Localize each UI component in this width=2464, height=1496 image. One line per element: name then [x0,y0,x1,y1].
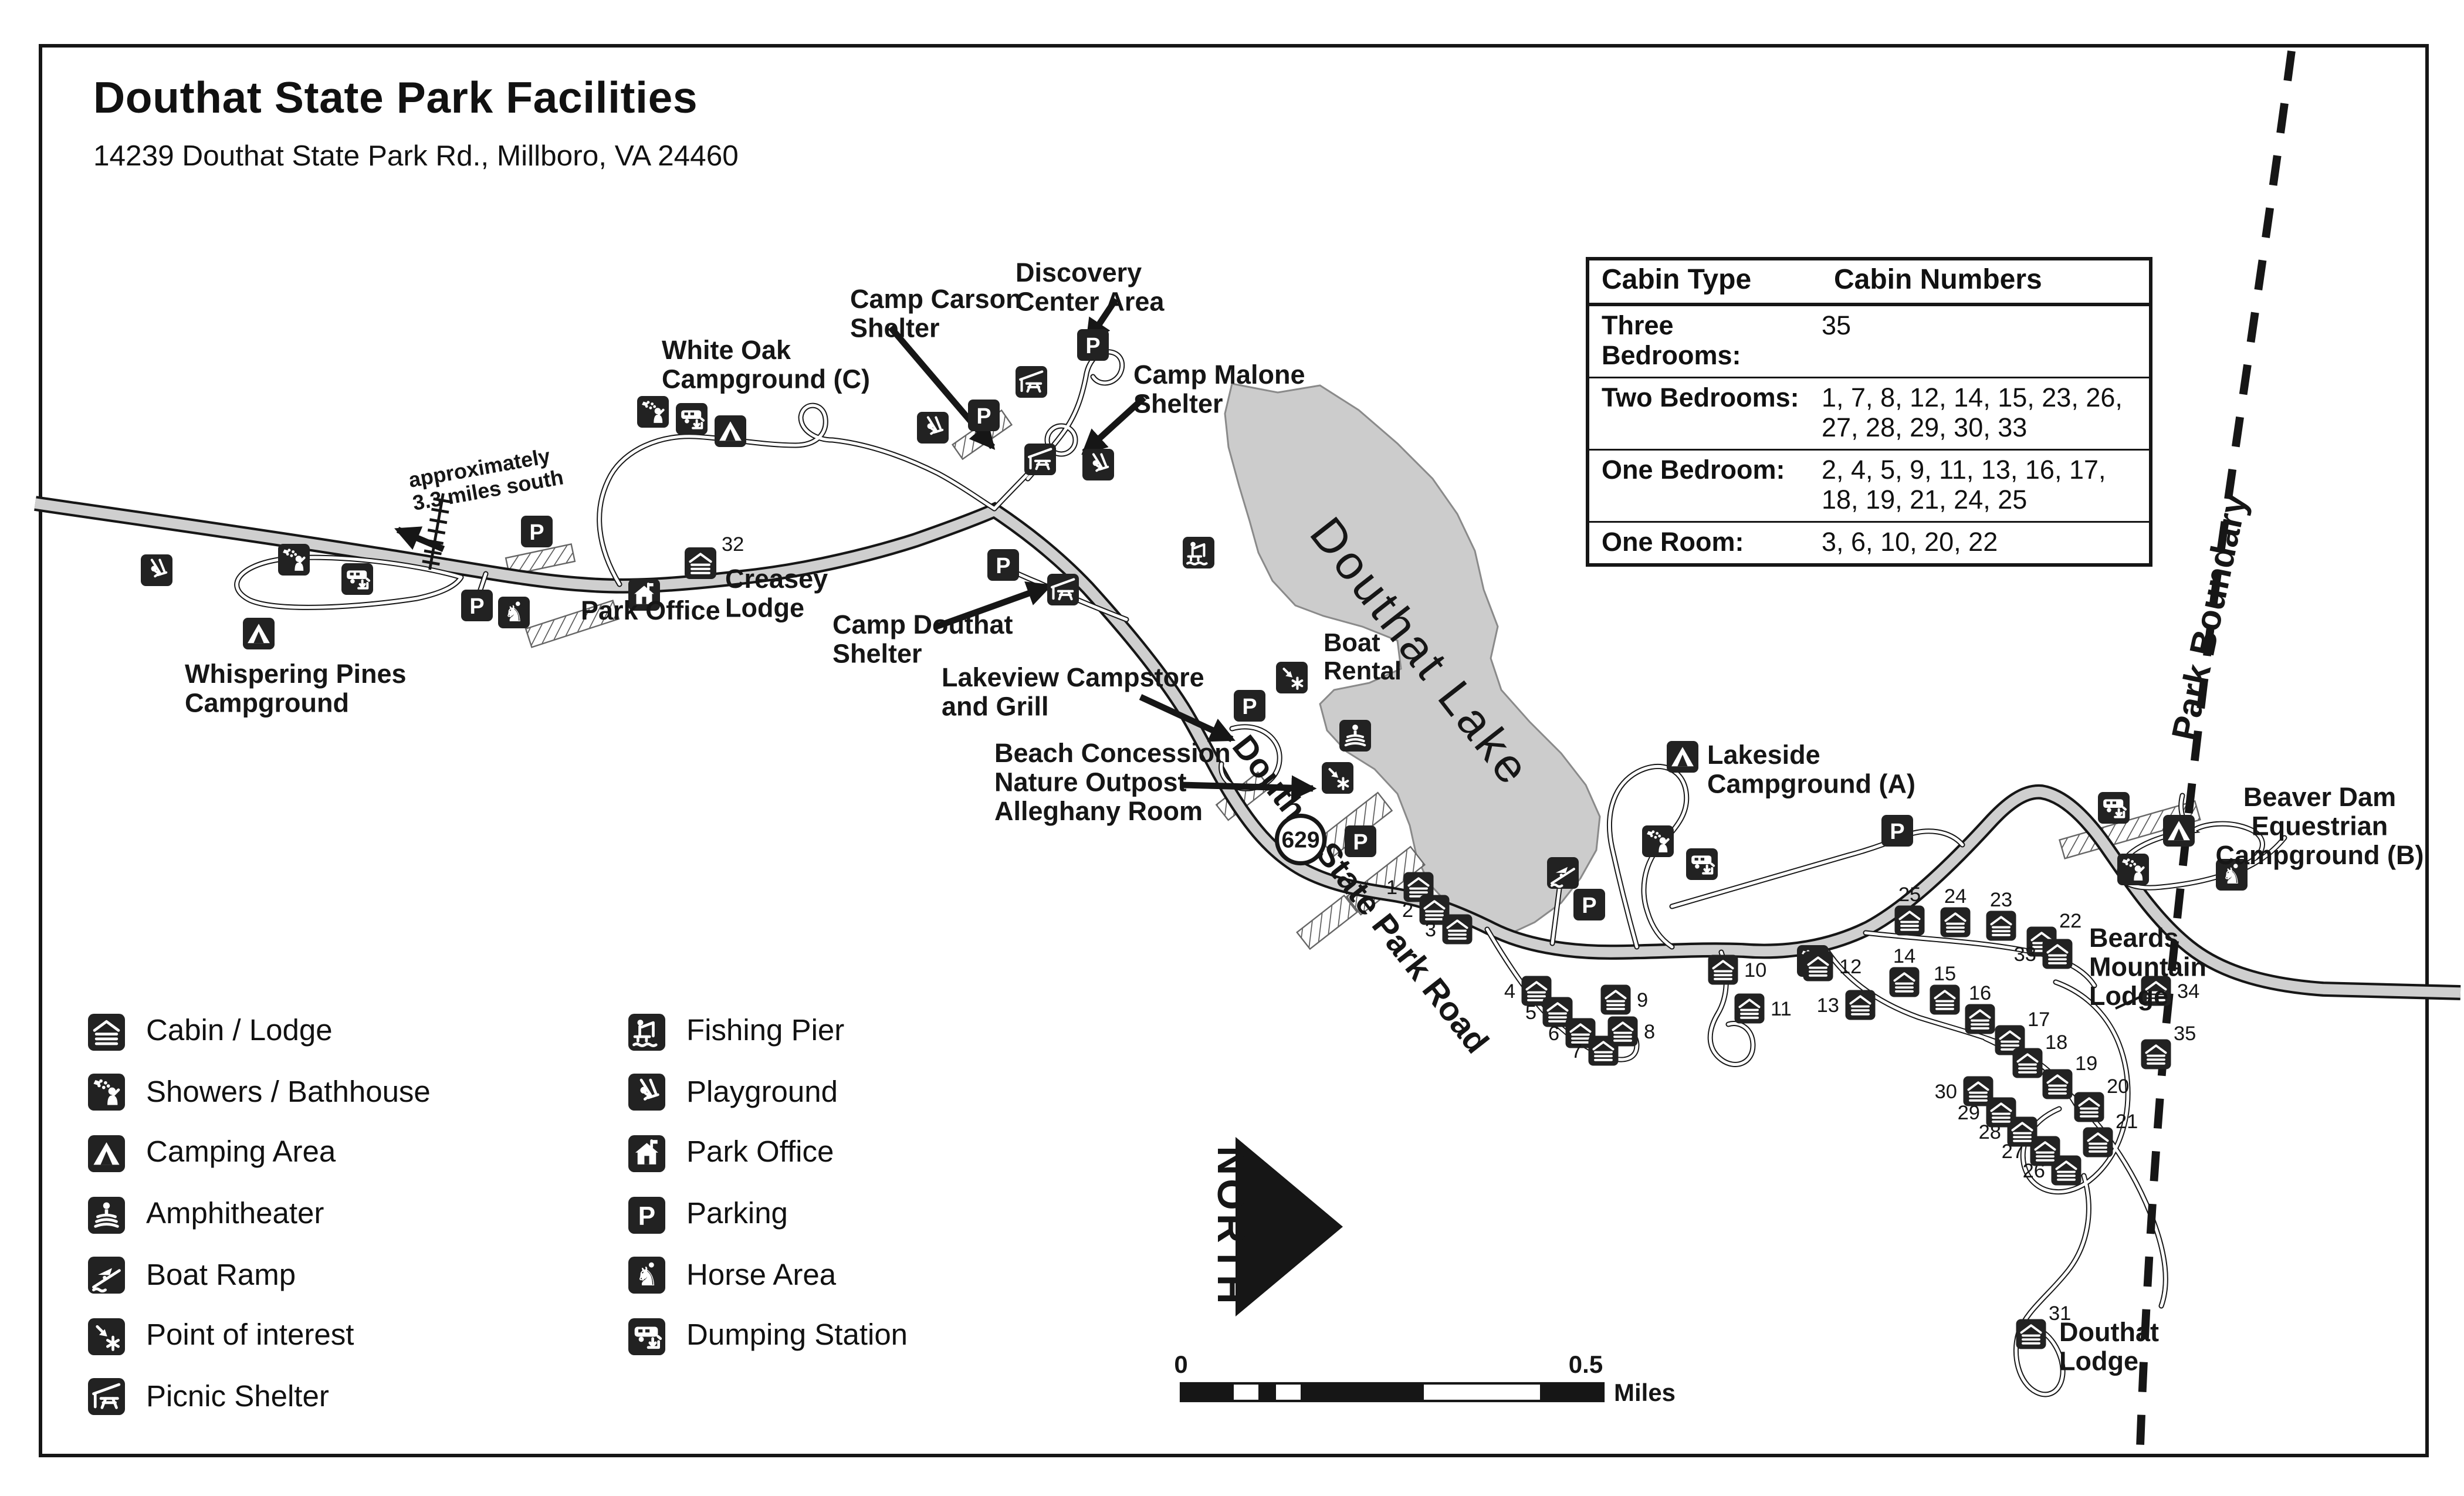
cabin-14-number: 14 [1893,945,1915,967]
legend-column-2: Fishing PierPlaygroundPark OfficePParkin… [628,1001,908,1367]
park-office-icon [628,1135,665,1172]
cabin-18-number: 18 [2045,1031,2067,1054]
legend-label: Parking [686,1197,788,1232]
cabin-10-number: 10 [1744,959,1766,981]
cabin-4-number: 4 [1504,980,1515,1003]
cabin-type: One Room: [1589,523,1822,563]
cabin-18-icon [2013,1048,2043,1078]
map-label-creasey-lodge: CreaseyLodge [725,564,828,623]
svg-text:♞: ♞ [635,1262,659,1292]
marker-cabin-icon [685,547,716,579]
svg-text:P: P [976,404,991,429]
cabin-numbers: 1, 7, 8, 12, 14, 15, 23, 26, 27, 28, 29,… [1822,378,2149,449]
route-629-label: 629 [1281,828,1319,853]
north-arrow: NORTH [1209,1137,1343,1316]
map-label-park-boundary: Park Boundary [2164,490,2255,743]
cabin-1-number: 1 [1386,876,1397,899]
map-label-lakeview-campstore: Lakeview Campstoreand Grill [942,662,1204,722]
map-label-camp-douthat-shelter: Camp DouthatShelter [832,610,1013,669]
cabin-33-icon [2043,939,2073,969]
legend-column-1: Cabin / LodgeShowers / BathhouseCamping … [88,1001,431,1427]
marker-shower-icon [2117,854,2149,885]
marker-camping-icon [1667,741,1698,773]
legend-item-shower: Showers / Bathhouse [88,1062,431,1123]
legend-label: Showers / Bathhouse [146,1075,431,1111]
cabin-15-icon [1930,985,1960,1015]
marker-dumping-icon [676,403,708,435]
cabin-21-number: 21 [2116,1111,2138,1133]
cabin-table-row: One Bedroom:2, 4, 5, 9, 11, 13, 16, 17, … [1589,451,2149,523]
cabin-12-icon [1803,952,1833,981]
cabin-table-header: Cabin Type Cabin Numbers [1589,260,2149,306]
cabin-type-header: Cabin Type [1589,260,1822,303]
marker-parking-icon: P [1077,329,1109,361]
cabin-30-icon [1964,1077,1993,1106]
cabin-20-icon [2074,1092,2104,1122]
map-label-camp-carson-shelter: Camp CarsonShelter [850,284,1022,343]
marker-parking-icon: P [1881,815,1913,847]
cabin-14-icon [1890,967,1920,997]
cabin-8-number: 8 [1644,1021,1655,1043]
cabin-17-number: 17 [2028,1008,2050,1031]
marker-boat-ramp-icon [1547,857,1579,889]
cabin-numbers: 2, 4, 5, 9, 11, 13, 16, 17, 18, 19, 21, … [1822,451,2149,521]
legend-label: Fishing Pier [686,1014,844,1050]
marker-dumping-icon [341,563,373,595]
cabin-23-number: 23 [1990,889,2012,911]
cabin-31-icon [2016,1319,2046,1349]
scale-bar: 00.5Miles [1174,1351,1676,1406]
svg-text:P: P [1085,334,1100,358]
map-label-cabin-32-number: 32 [722,533,744,556]
marker-shower-icon [1642,825,1674,857]
picnic-shelter-icon [88,1379,125,1416]
legend-item-park-office: Park Office [628,1123,908,1184]
cabin-3-icon [1443,915,1473,945]
marker-shower-icon [278,544,310,576]
legend-label: Boat Ramp [146,1258,296,1293]
legend-label: Amphitheater [146,1197,324,1232]
parking-icon: P [628,1196,665,1233]
shower-icon [88,1074,125,1111]
legend-item-dumping: Dumping Station [628,1306,908,1367]
legend-item-camping: Camping Area [88,1123,431,1184]
legend-label: Point of interest [146,1319,354,1354]
marker-shower-icon [637,396,669,428]
park-boundary-line [2140,51,2292,1447]
svg-text:P: P [1890,820,1904,844]
poi-icon [88,1318,125,1355]
cabin-numbers: 35 [1822,306,2149,377]
map-label-approx-miles-note: approximately3.3 miles south [407,442,565,515]
cabin-21-icon [2083,1128,2113,1157]
marker-parking-icon: P [521,516,553,547]
cabin-33-number: 33 [2014,943,2036,966]
marker-picnic-shelter-icon [1016,366,1047,398]
horse-icon: ♞ [628,1257,665,1294]
cabin-9-number: 9 [1637,989,1648,1011]
marker-parking-icon: P [1234,690,1265,722]
cabin-16-icon [1965,1004,1995,1034]
cabin-table-row: Three Bedrooms:35 [1589,306,2149,378]
cabin-20-number: 20 [2107,1075,2129,1098]
marker-amphitheater-icon [1339,720,1371,752]
marker-picnic-shelter-icon [1047,574,1079,605]
svg-text:♞: ♞ [504,601,524,627]
north-label: NORTH [1209,1146,1254,1307]
scale-text: Miles [1614,1379,1676,1406]
marker-dumping-icon [1686,848,1718,880]
cabin-table-row: Two Bedrooms:1, 7, 8, 12, 14, 15, 23, 26… [1589,378,2149,451]
cabin-numbers: 3, 6, 10, 20, 22 [1822,523,2149,563]
marker-playground-icon [917,412,949,444]
cabin-3-number: 3 [1425,919,1436,941]
cabin-35-icon [2141,1040,2171,1069]
legend-item-parking: PParking [628,1184,908,1245]
legend-item-amphitheater: Amphitheater [88,1184,431,1245]
park-map-page: Douthat State Park Facilities 14239 Dout… [0,0,2464,1496]
map-label-white-oak-campground: White OakCampground (C) [662,335,870,394]
cabin-13-number: 13 [1817,994,1839,1017]
cabin-12-number: 12 [1839,956,1861,978]
cabin-9-icon [1601,985,1631,1015]
svg-text:P: P [529,520,544,545]
marker-picnic-shelter-icon [1024,444,1056,475]
route-629-shield: 629 [1277,816,1325,864]
boat-ramp-icon [88,1257,125,1294]
legend-label: Playground [686,1075,838,1111]
cabin-type: One Bedroom: [1589,451,1822,521]
svg-text:P: P [996,554,1010,578]
camping-icon [88,1135,125,1172]
legend-label: Camping Area [146,1136,336,1171]
cabin-35-number: 35 [2174,1023,2196,1045]
marker-playground-icon [141,554,172,586]
cabin-table: Cabin Type Cabin Numbers Three Bedrooms:… [1586,257,2152,567]
legend-label: Horse Area [686,1258,836,1293]
cabin-type: Two Bedrooms: [1589,378,1822,449]
marker-poi-icon [1322,762,1353,794]
legend-label: Dumping Station [686,1319,908,1354]
legend-item-cabin: Cabin / Lodge [88,1001,431,1062]
legend-item-horse: ♞Horse Area [628,1245,908,1306]
cabin-25-icon [1895,906,1925,936]
cabin-11-number: 11 [1771,998,1792,1020]
legend-item-boat-ramp: Boat Ramp [88,1245,431,1306]
cabin-23-icon [1986,911,2016,941]
cabin-6-number: 6 [1548,1023,1559,1045]
cabin-2-number: 2 [1402,899,1413,922]
legend-item-playground: Playground [628,1062,908,1123]
cabin-24-icon [1941,908,1971,937]
marker-camping-icon [243,618,275,649]
marker-camping-icon [715,415,746,447]
cabin-10-icon [1708,955,1738,985]
cabin-19-icon [2043,1069,2073,1099]
cabin-19-number: 19 [2075,1052,2097,1075]
legend-label: Cabin / Lodge [146,1014,333,1050]
legend-label: Park Office [686,1136,834,1171]
svg-text:P: P [1582,893,1596,918]
scale-text: 0.5 [1569,1351,1603,1378]
cabin-22-number: 22 [2059,910,2081,932]
cabin-7-number: 7 [1571,1040,1582,1062]
marker-horse-icon: ♞ [498,597,530,628]
cabin-8-icon [1608,1017,1638,1047]
cabin-24-number: 24 [1944,885,1967,908]
cabin-table-row: One Room:3, 6, 10, 20, 22 [1589,523,2149,563]
svg-text:P: P [469,594,484,619]
svg-text:P: P [638,1201,655,1230]
svg-text:P: P [1242,695,1257,719]
marker-poi-icon [1276,662,1308,693]
cabin-34-number: 34 [2177,980,2199,1003]
legend-item-fishing-pier: Fishing Pier [628,1001,908,1062]
marker-playground-icon [1082,449,1114,480]
dumping-icon [628,1318,665,1355]
legend-item-poi: Point of interest [88,1306,431,1367]
marker-parking-icon: P [1573,889,1605,920]
cabin-13-icon [1846,990,1876,1020]
marker-parking-icon: P [968,400,1000,431]
map-label-park-office: Park Office [581,595,720,625]
map-label-lakeside-campground: LakesideCampground (A) [1707,740,1915,799]
cabin-30-number: 30 [1935,1081,1957,1103]
cabin-numbers-header: Cabin Numbers [1822,260,2055,303]
cabin-type: Three Bedrooms: [1589,306,1822,377]
svg-text:P: P [1353,830,1368,855]
marker-parking-icon: P [461,590,493,621]
cabin-15-number: 15 [1934,963,1956,985]
fishing-pier-icon [628,1013,665,1050]
marker-fishing-pier-icon [1183,537,1214,568]
amphitheater-icon [88,1196,125,1233]
map-label-beach-concession: Beach ConcessionNature OutpostAlleghany … [994,738,1231,826]
map-label-discovery-center-area: DiscoveryCenter Area [1016,258,1165,316]
playground-icon [628,1074,665,1111]
marker-parking-icon: P [987,549,1019,581]
legend-item-picnic-shelter: Picnic Shelter [88,1367,431,1428]
cabin-icon [88,1013,125,1050]
cabin-5-number: 5 [1525,1001,1536,1024]
cabin-11-icon [1735,994,1765,1024]
scale-text: 0 [1174,1351,1187,1378]
marker-camping-icon [2163,815,2195,847]
cabin-25-number: 25 [1898,884,1921,906]
cabin-16-number: 16 [1969,982,1991,1004]
marker-dumping-icon [2098,792,2130,824]
legend-label: Picnic Shelter [146,1380,329,1415]
map-label-whispering-pines-campground: Whispering PinesCampground [185,659,407,718]
